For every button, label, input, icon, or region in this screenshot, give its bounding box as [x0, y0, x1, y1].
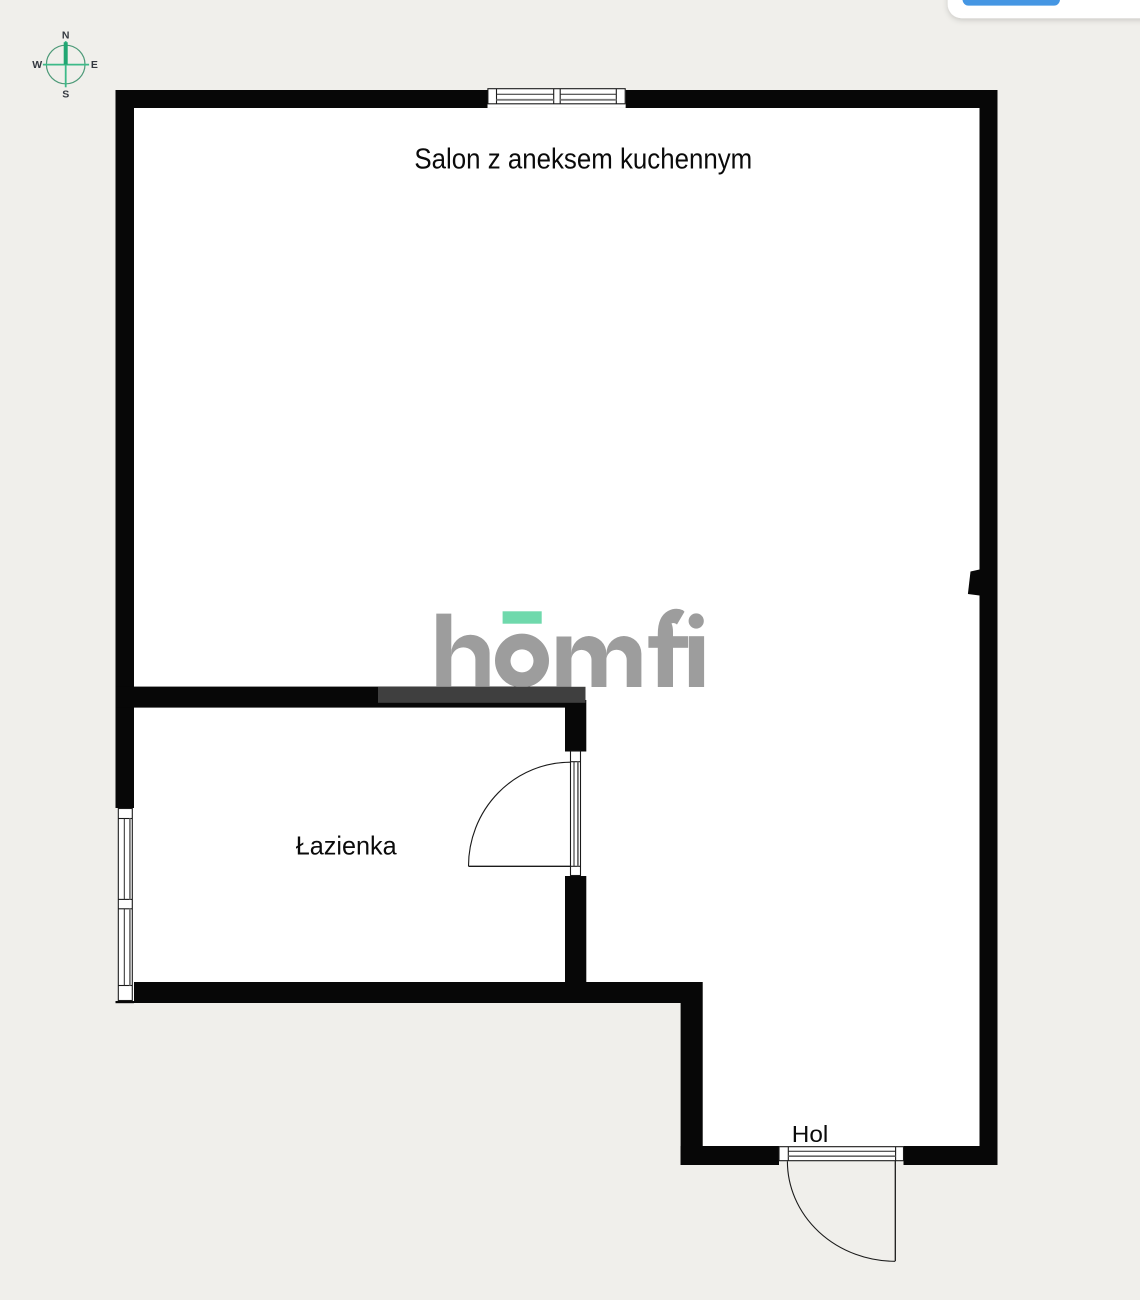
svg-text:N: N — [62, 30, 70, 42]
svg-text:Hol: Hol — [792, 1121, 829, 1147]
svg-text:S: S — [62, 88, 69, 100]
svg-text:Salon z aneksem kuchennym: Salon z aneksem kuchennym — [414, 143, 752, 175]
svg-text:Łazienka: Łazienka — [296, 830, 398, 860]
svg-text:E: E — [91, 59, 98, 71]
svg-text:W: W — [32, 59, 42, 71]
